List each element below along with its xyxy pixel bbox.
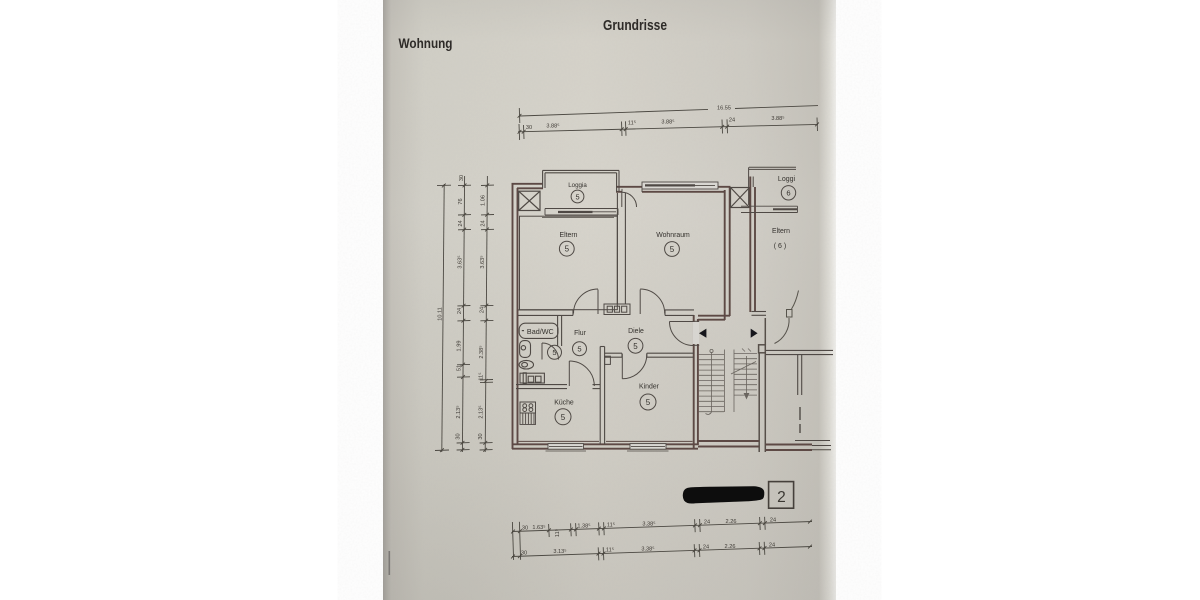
svg-text:1.63⁵: 1.63⁵ <box>532 524 545 531</box>
svg-text:24: 24 <box>481 220 487 226</box>
svg-text:11⁵: 11⁵ <box>554 529 561 537</box>
svg-text:Grundrisse: Grundrisse <box>603 18 667 34</box>
svg-text:24: 24 <box>704 520 710 526</box>
svg-text:6: 6 <box>786 189 790 198</box>
svg-text:11⁵: 11⁵ <box>478 372 485 380</box>
svg-text:10.11: 10.11 <box>438 307 444 321</box>
svg-text:3.88⁵: 3.88⁵ <box>771 115 784 122</box>
svg-text:30: 30 <box>456 433 462 439</box>
svg-text:5: 5 <box>646 398 651 407</box>
svg-text:30: 30 <box>459 175 465 181</box>
svg-text:30: 30 <box>526 125 532 131</box>
svg-text:30: 30 <box>521 551 527 557</box>
svg-text:2.13⁵: 2.13⁵ <box>455 405 462 418</box>
svg-text:3.63⁵: 3.63⁵ <box>479 255 486 268</box>
svg-text:76: 76 <box>458 198 464 204</box>
svg-text:24: 24 <box>703 545 709 551</box>
svg-text:1.99: 1.99 <box>457 341 463 352</box>
svg-text:5: 5 <box>565 245 570 254</box>
svg-text:2.13⁵: 2.13⁵ <box>478 405 485 418</box>
svg-text:30: 30 <box>478 433 484 439</box>
svg-text:2: 2 <box>777 489 786 506</box>
svg-text:5: 5 <box>577 345 581 354</box>
svg-text:24: 24 <box>457 308 463 314</box>
svg-text:1.06: 1.06 <box>481 195 487 206</box>
svg-text:Eltern: Eltern <box>772 228 790 235</box>
svg-text:5: 5 <box>552 348 556 357</box>
svg-text:3.38⁵: 3.38⁵ <box>642 521 655 528</box>
svg-text:Loggia: Loggia <box>568 182 587 189</box>
svg-text:11⁵: 11⁵ <box>606 547 614 554</box>
svg-text:5: 5 <box>633 342 638 351</box>
svg-text:5: 5 <box>670 245 675 254</box>
svg-text:Loggi: Loggi <box>778 176 796 183</box>
svg-text:24: 24 <box>480 307 486 313</box>
svg-text:Wohnraum: Wohnraum <box>656 232 690 239</box>
svg-text:3.13⁵: 3.13⁵ <box>553 548 566 555</box>
svg-text:2.26: 2.26 <box>725 544 736 550</box>
svg-text:Eltern: Eltern <box>559 232 577 239</box>
svg-text:24: 24 <box>458 220 464 226</box>
svg-text:3.63⁵: 3.63⁵ <box>457 255 464 268</box>
svg-text:5: 5 <box>561 413 566 422</box>
svg-text:24: 24 <box>770 518 776 524</box>
svg-text:Diele: Diele <box>628 328 644 335</box>
svg-text:11⁵: 11⁵ <box>628 120 636 127</box>
svg-text:5: 5 <box>575 192 579 201</box>
svg-text:2.26: 2.26 <box>726 519 737 525</box>
svg-text:1.38⁵: 1.38⁵ <box>577 523 590 530</box>
svg-text:Bad/WC: Bad/WC <box>527 327 554 336</box>
svg-text:2.38⁵: 2.38⁵ <box>478 345 485 358</box>
svg-text:3.38⁵: 3.38⁵ <box>641 546 654 553</box>
svg-text:16.55: 16.55 <box>717 106 731 112</box>
svg-text:( 6 ): ( 6 ) <box>774 243 786 250</box>
svg-text:Wohnung: Wohnung <box>399 36 453 51</box>
svg-text:24: 24 <box>769 543 775 549</box>
svg-text:Kinder: Kinder <box>639 384 660 391</box>
svg-text:3.88⁵: 3.88⁵ <box>546 123 559 130</box>
svg-text:24: 24 <box>729 118 735 124</box>
svg-text:3.88⁵: 3.88⁵ <box>661 119 674 126</box>
svg-text:Flur: Flur <box>574 330 587 337</box>
svg-text:11⁵: 11⁵ <box>607 522 615 529</box>
svg-text:Küche: Küche <box>554 400 574 407</box>
svg-text:30: 30 <box>522 526 528 532</box>
